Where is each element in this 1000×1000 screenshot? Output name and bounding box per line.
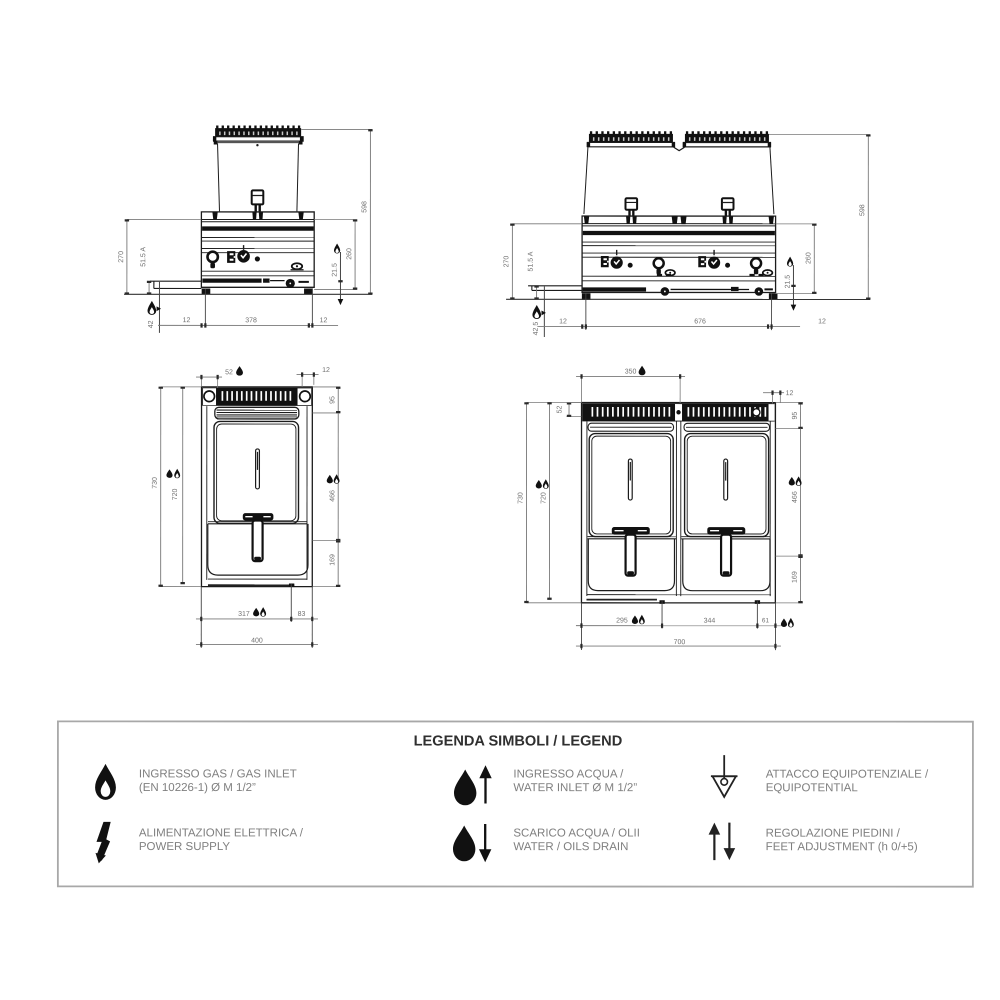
svg-text:700: 700 [674,639,686,646]
svg-text:676: 676 [694,318,706,325]
svg-text:(EN 10226-1) Ø M 1/2”: (EN 10226-1) Ø M 1/2” [139,782,256,794]
svg-text:WATER / OILS DRAIN: WATER / OILS DRAIN [513,841,628,853]
svg-text:169: 169 [329,554,336,566]
svg-text:270: 270 [503,256,510,268]
svg-text:83: 83 [298,611,306,618]
svg-text:LEGENDA SIMBOLI / LEGEND: LEGENDA SIMBOLI / LEGEND [414,733,623,749]
svg-text:344: 344 [704,618,716,625]
svg-text:378: 378 [245,317,257,324]
svg-text:466: 466 [792,491,799,503]
svg-text:260: 260 [346,248,353,260]
svg-text:350: 350 [625,369,637,376]
svg-text:730: 730 [517,492,524,504]
svg-text:POWER SUPPLY: POWER SUPPLY [139,841,231,853]
svg-text:466: 466 [329,490,336,502]
svg-text:270: 270 [118,251,125,263]
svg-text:REGOLAZIONE PIEDINI /: REGOLAZIONE PIEDINI / [766,828,901,840]
svg-text:12: 12 [322,367,330,374]
svg-text:12: 12 [818,318,826,325]
svg-text:ALIMENTAZIONE ELETTRICA /: ALIMENTAZIONE ELETTRICA / [139,827,304,839]
svg-text:EQUIPOTENTIAL: EQUIPOTENTIAL [766,782,859,794]
svg-text:12: 12 [559,318,567,325]
svg-text:95: 95 [329,396,336,404]
svg-text:51.5 A: 51.5 A [528,251,535,271]
svg-text:730: 730 [152,477,159,489]
svg-text:21.5: 21.5 [332,263,339,277]
svg-text:720: 720 [540,492,547,504]
svg-text:95: 95 [792,412,799,420]
svg-text:WATER INLET Ø M 1/2”: WATER INLET Ø M 1/2” [513,782,637,794]
svg-text:INGRESSO GAS / GAS INLET: INGRESSO GAS / GAS INLET [139,768,297,780]
svg-text:12: 12 [320,317,328,324]
svg-text:21.5: 21.5 [785,275,792,289]
svg-text:42: 42 [148,320,155,328]
svg-text:42.5: 42.5 [533,322,540,336]
svg-text:ATTACCO EQUIPOTENZIALE /: ATTACCO EQUIPOTENZIALE / [766,769,929,781]
svg-text:317: 317 [238,611,250,618]
svg-text:598: 598 [859,204,866,216]
svg-text:169: 169 [792,571,799,583]
svg-text:52: 52 [225,369,233,376]
svg-text:52: 52 [557,406,564,414]
svg-text:FEET ADJUSTMENT (h 0/+5): FEET ADJUSTMENT (h 0/+5) [766,841,918,853]
svg-text:295: 295 [616,618,628,625]
svg-text:INGRESSO ACQUA /: INGRESSO ACQUA / [513,769,624,781]
svg-text:400: 400 [251,638,263,645]
svg-text:51.5 A: 51.5 A [140,247,147,267]
svg-text:260: 260 [805,252,812,264]
svg-text:12: 12 [786,390,794,397]
svg-text:SCARICO ACQUA / OLII: SCARICO ACQUA / OLII [513,828,640,840]
svg-text:598: 598 [361,201,368,213]
svg-text:61: 61 [762,617,770,624]
svg-text:720: 720 [172,488,179,500]
svg-text:12: 12 [183,317,191,324]
